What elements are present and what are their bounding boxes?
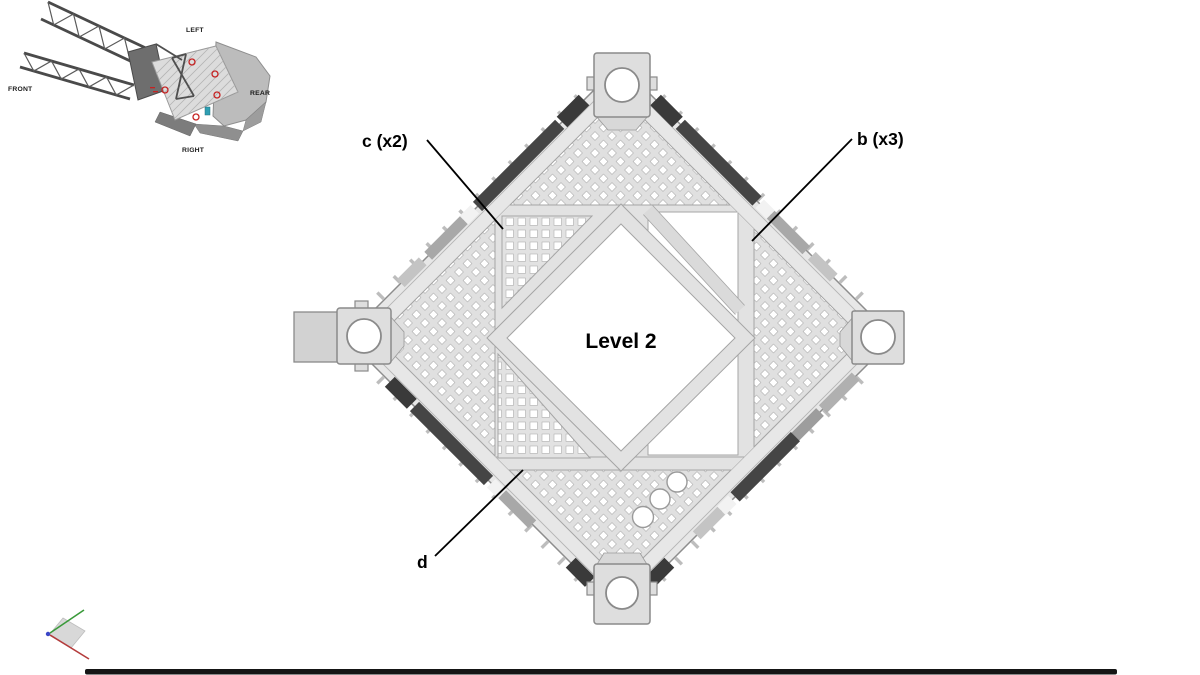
corner-block-left bbox=[337, 301, 391, 371]
level-label: Level 2 bbox=[585, 330, 656, 353]
boom-truss-lower-icon bbox=[20, 53, 134, 99]
edge-tick bbox=[856, 293, 862, 299]
axis-triad bbox=[46, 610, 89, 659]
inset-label-rear: REAR bbox=[250, 90, 270, 97]
footer-bar bbox=[85, 669, 1117, 675]
orientation-inset-view: FRONT LEFT REAR RIGHT bbox=[8, 2, 325, 154]
lifting-hole bbox=[605, 68, 639, 102]
lifting-hole bbox=[861, 320, 895, 354]
leader-line-b bbox=[752, 139, 852, 241]
lifting-hole bbox=[347, 319, 381, 353]
edge-tick bbox=[377, 377, 383, 383]
edge-tick bbox=[377, 293, 383, 299]
corner-block-right bbox=[852, 311, 904, 364]
edge-tick bbox=[840, 276, 846, 282]
teal-marker bbox=[205, 107, 210, 115]
level2-plan-view: Level 2 c (x2) b (x3) d bbox=[294, 53, 904, 624]
rail-collar bbox=[464, 209, 475, 220]
rail-collar bbox=[721, 500, 732, 511]
edge-tick bbox=[542, 541, 548, 547]
callout-label-c: c (x2) bbox=[362, 131, 408, 151]
triad-plane bbox=[49, 618, 85, 648]
edge-tick bbox=[676, 558, 682, 564]
corner-block-top bbox=[587, 53, 657, 117]
inset-label-front: FRONT bbox=[8, 86, 33, 93]
rear-housing-skirt bbox=[194, 124, 243, 141]
lifting-hole bbox=[606, 577, 638, 609]
rail-collar bbox=[760, 204, 771, 215]
left-extension-tab bbox=[294, 312, 340, 362]
level2-diagram-svg: FRONT LEFT REAR RIGHT bbox=[0, 0, 1200, 675]
callout-label-d: d bbox=[417, 552, 428, 572]
corner-block-bottom bbox=[587, 564, 657, 624]
edge-tick bbox=[692, 541, 698, 547]
edge-tick bbox=[558, 558, 564, 564]
inset-label-left: LEFT bbox=[186, 27, 204, 34]
inset-label-right: RIGHT bbox=[182, 147, 205, 154]
axis-z-blue-dot bbox=[46, 632, 50, 636]
slide-canvas: FRONT LEFT REAR RIGHT bbox=[0, 0, 1200, 675]
callout-label-b: b (x3) bbox=[857, 129, 904, 149]
